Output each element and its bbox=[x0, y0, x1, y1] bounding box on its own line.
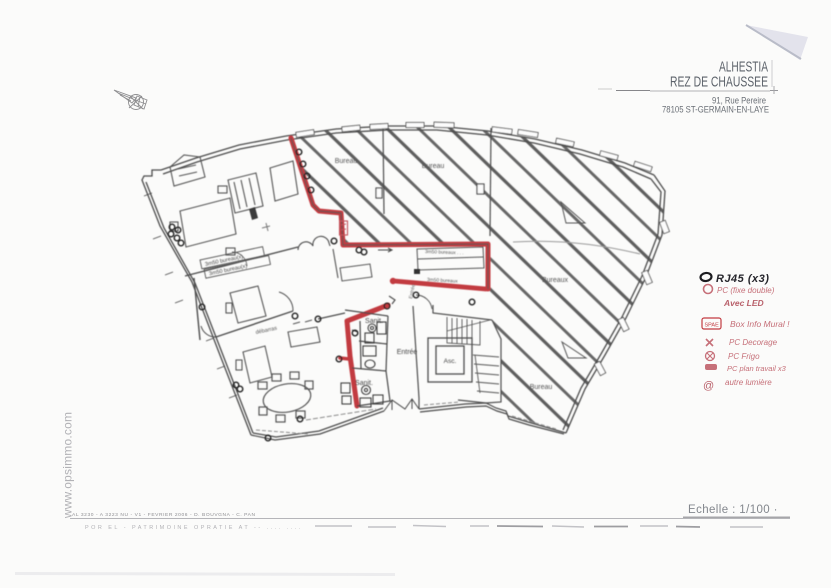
svg-text:autre lumière: autre lumière bbox=[725, 378, 772, 387]
svg-text:78105 ST-GERMAIN-EN-LAYE: 78105 ST-GERMAIN-EN-LAYE bbox=[662, 105, 769, 116]
svg-text:Box Info Mural !: Box Info Mural ! bbox=[730, 319, 790, 329]
svg-text:AL 3230 - A 3223 NU - V1 - FEV: AL 3230 - A 3223 NU - V1 - FEVRIER 2006 … bbox=[72, 512, 255, 518]
svg-text:Bureau: Bureau bbox=[422, 163, 445, 170]
svg-text:Avec LED: Avec LED bbox=[723, 298, 764, 308]
svg-text:PC Frigo: PC Frigo bbox=[728, 352, 760, 361]
svg-text:Asc.: Asc. bbox=[444, 358, 457, 365]
svg-text:@: @ bbox=[703, 380, 714, 392]
svg-text:Entrée: Entrée bbox=[397, 349, 418, 356]
svg-text:Sanit.: Sanit. bbox=[365, 318, 383, 325]
svg-text:Echelle : 1/100 ·: Echelle : 1/100 · bbox=[688, 504, 778, 516]
svg-text:PC plan travail x3: PC plan travail x3 bbox=[727, 364, 787, 373]
svg-text:PC (fixe double): PC (fixe double) bbox=[717, 286, 775, 295]
svg-text:Bureaux: Bureaux bbox=[542, 277, 569, 284]
svg-text:REZ DE CHAUSSEE: REZ DE CHAUSSEE bbox=[670, 74, 768, 91]
svg-text:RJ45 (x3): RJ45 (x3) bbox=[716, 273, 769, 285]
svg-text:Sanit.: Sanit. bbox=[355, 380, 373, 387]
svg-text:Bureau: Bureau bbox=[335, 158, 358, 165]
svg-text:Bureau: Bureau bbox=[530, 384, 553, 391]
svg-text:PC Decorage: PC Decorage bbox=[729, 338, 778, 347]
svg-text:SPAE: SPAE bbox=[705, 323, 720, 329]
svg-text:www.opsimmo.com: www.opsimmo.com bbox=[61, 412, 75, 519]
